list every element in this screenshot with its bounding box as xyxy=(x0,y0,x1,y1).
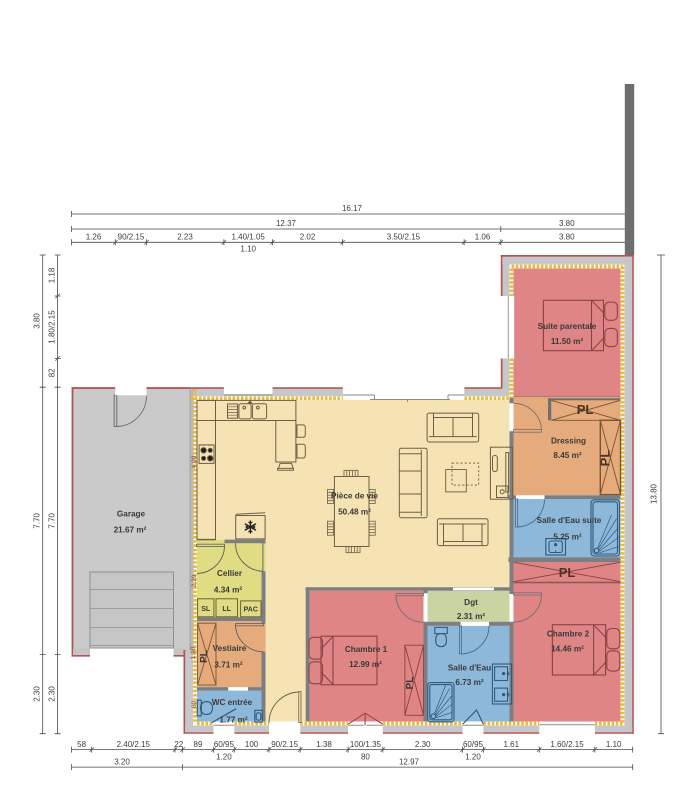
svg-text:4.00: 4.00 xyxy=(191,455,198,468)
svg-text:7.70: 7.70 xyxy=(47,512,56,528)
svg-text:Dgt: Dgt xyxy=(464,598,478,607)
svg-text:60/95: 60/95 xyxy=(214,740,235,749)
svg-text:3.80: 3.80 xyxy=(33,313,42,329)
svg-text:PL: PL xyxy=(199,650,210,663)
svg-text:22: 22 xyxy=(174,740,183,749)
svg-text:89: 89 xyxy=(194,740,203,749)
svg-text:2.30: 2.30 xyxy=(415,740,431,749)
svg-text:8.45 m²: 8.45 m² xyxy=(553,451,581,460)
svg-text:3.20: 3.20 xyxy=(114,757,130,766)
svg-text:14.46 m²: 14.46 m² xyxy=(551,645,584,654)
svg-text:16.17: 16.17 xyxy=(342,204,363,213)
svg-text:2.30: 2.30 xyxy=(33,686,42,702)
svg-text:90/2.15: 90/2.15 xyxy=(271,740,298,749)
svg-text:WC entrée: WC entrée xyxy=(212,698,253,707)
svg-text:3.80: 3.80 xyxy=(559,219,575,228)
svg-text:PL: PL xyxy=(559,565,576,580)
svg-text:50.48 m²: 50.48 m² xyxy=(338,508,371,517)
svg-text:1.10: 1.10 xyxy=(240,245,256,254)
svg-text:Pièce de vie: Pièce de vie xyxy=(331,492,378,501)
svg-text:1.77 m²: 1.77 m² xyxy=(219,716,247,725)
svg-text:1.20: 1.20 xyxy=(465,753,481,762)
svg-text:1.60/2.15: 1.60/2.15 xyxy=(550,740,584,749)
svg-text:12.99 m²: 12.99 m² xyxy=(349,660,382,669)
svg-text:Cellier: Cellier xyxy=(217,569,243,578)
svg-text:5.25 m²: 5.25 m² xyxy=(553,533,581,542)
svg-text:1.18: 1.18 xyxy=(47,267,56,283)
svg-text:Garage: Garage xyxy=(117,510,146,519)
svg-text:2.31 m²: 2.31 m² xyxy=(457,612,485,621)
svg-text:82: 82 xyxy=(47,368,56,377)
svg-text:2.40/2.15: 2.40/2.15 xyxy=(117,740,151,749)
svg-text:Salle d'Eau: Salle d'Eau xyxy=(448,664,491,673)
svg-text:SL: SL xyxy=(201,606,211,613)
svg-text:1.40/1.05: 1.40/1.05 xyxy=(232,233,266,242)
svg-text:7.70: 7.70 xyxy=(33,512,42,528)
svg-text:3.71 m²: 3.71 m² xyxy=(214,661,242,670)
svg-text:1.06: 1.06 xyxy=(475,233,491,242)
svg-text:2.30: 2.30 xyxy=(47,686,56,702)
svg-text:PL: PL xyxy=(598,450,613,467)
svg-text:1.80/2.15: 1.80/2.15 xyxy=(47,310,56,344)
svg-text:Vestiaire: Vestiaire xyxy=(213,644,247,653)
svg-text:PL: PL xyxy=(577,402,594,417)
svg-text:60/95: 60/95 xyxy=(463,740,484,749)
svg-text:13.80: 13.80 xyxy=(650,483,659,504)
svg-text:80: 80 xyxy=(361,753,370,762)
svg-text:Chambre 1: Chambre 1 xyxy=(345,645,388,654)
svg-text:PL: PL xyxy=(405,677,416,690)
svg-text:6.73 m²: 6.73 m² xyxy=(455,678,483,687)
svg-text:12.37: 12.37 xyxy=(276,219,297,228)
svg-text:3.80: 3.80 xyxy=(559,233,575,242)
svg-text:90/2.15: 90/2.15 xyxy=(118,233,145,242)
svg-text:60: 60 xyxy=(191,701,198,709)
svg-text:1.26: 1.26 xyxy=(86,233,102,242)
svg-text:11.50 m²: 11.50 m² xyxy=(551,337,584,346)
svg-text:3.50/2.15: 3.50/2.15 xyxy=(387,233,421,242)
svg-text:Chambre 2: Chambre 2 xyxy=(547,630,590,639)
svg-text:1.20: 1.20 xyxy=(216,753,232,762)
svg-text:2.23: 2.23 xyxy=(177,233,193,242)
svg-text:100/1.35: 100/1.35 xyxy=(350,740,382,749)
svg-text:2.29: 2.29 xyxy=(191,574,198,587)
svg-text:1.10: 1.10 xyxy=(606,740,622,749)
svg-text:1.38: 1.38 xyxy=(316,740,332,749)
svg-text:Salle d'Eau suite: Salle d'Eau suite xyxy=(537,516,602,525)
svg-text:PAC: PAC xyxy=(244,607,258,614)
svg-text:Dressing: Dressing xyxy=(551,437,586,446)
svg-text:4.34 m²: 4.34 m² xyxy=(214,586,242,595)
svg-text:12.97: 12.97 xyxy=(399,757,420,766)
svg-text:Suite parentale: Suite parentale xyxy=(538,322,597,331)
svg-text:2.02: 2.02 xyxy=(300,233,316,242)
svg-text:58: 58 xyxy=(77,740,86,749)
svg-text:1.90: 1.90 xyxy=(190,646,197,659)
svg-text:LL: LL xyxy=(222,606,231,613)
svg-text:100: 100 xyxy=(245,740,259,749)
svg-text:1.61: 1.61 xyxy=(504,740,520,749)
svg-text:21.67 m²: 21.67 m² xyxy=(114,526,147,535)
